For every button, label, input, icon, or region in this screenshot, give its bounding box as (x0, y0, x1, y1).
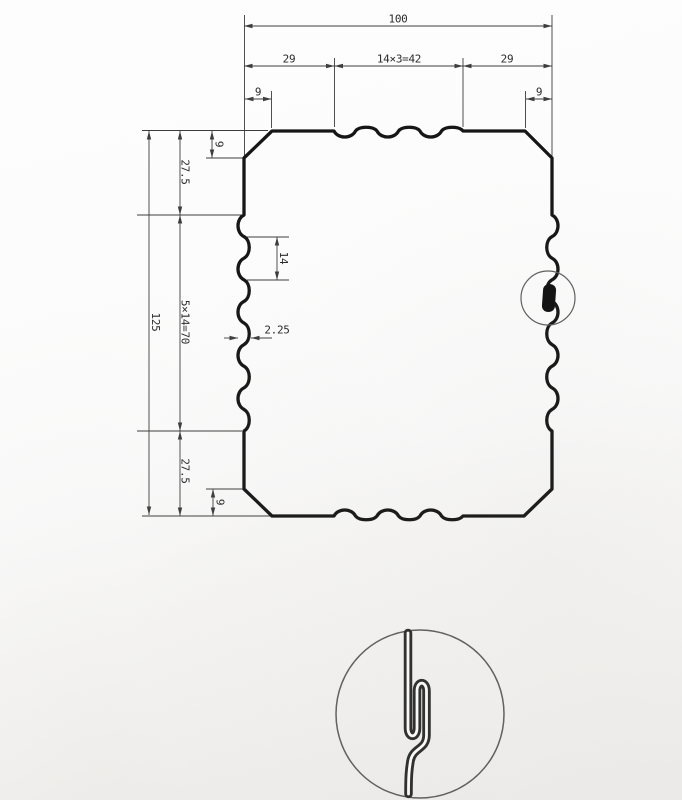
arrowhead (210, 150, 214, 159)
arrowhead (275, 272, 279, 281)
arrowhead (251, 336, 260, 340)
dim-top-left-segment: 29 (283, 53, 296, 66)
arrowhead (178, 423, 182, 432)
arrowhead (245, 97, 254, 101)
dimension-lines (137, 15, 552, 516)
arrowhead (178, 508, 182, 517)
dim-left-bottom-chamfer: 9 (214, 499, 227, 505)
arrowhead (147, 131, 151, 140)
arrowhead (544, 64, 553, 68)
dim-left-bottom-segment: 27.5 (179, 458, 192, 483)
drawing-canvas: 100 29 14×3=42 29 9 9 125 27.5 5×14=70 2… (0, 0, 682, 800)
arrowhead (211, 489, 215, 498)
arrowhead (178, 131, 182, 140)
dim-top-middle-segment: 14×3=42 (377, 53, 421, 66)
arrowhead (244, 24, 253, 28)
arrowhead (544, 97, 553, 101)
arrowhead (230, 336, 239, 340)
dim-top-right-chamfer: 9 (536, 86, 542, 99)
arrowhead (210, 131, 214, 140)
dim-left-top-chamfer: 9 (213, 141, 226, 147)
arrowhead (244, 64, 253, 68)
arrowhead (544, 24, 553, 28)
dim-left-top-segment: 27.5 (179, 159, 192, 184)
dim-rib-pitch: 14 (277, 252, 290, 265)
arrowhead (178, 215, 182, 224)
arrowhead (263, 97, 272, 101)
arrowhead (526, 97, 535, 101)
dim-top-left-chamfer: 9 (255, 86, 261, 99)
dim-left-middle-segment: 5×14=70 (179, 300, 192, 344)
arrowhead (335, 64, 344, 68)
dim-overall-height: 125 (149, 313, 162, 332)
arrowhead (147, 507, 151, 516)
arrowhead (463, 64, 472, 68)
drawing-sheet: 100 29 14×3=42 29 9 9 125 27.5 5×14=70 2… (0, 0, 682, 800)
arrowhead (178, 207, 182, 216)
arrowhead (455, 64, 464, 68)
arrowhead (326, 64, 335, 68)
arrowhead (178, 431, 182, 440)
dim-overall-width: 100 (389, 13, 408, 26)
seam-lock-section (542, 284, 557, 313)
dim-top-right-segment: 29 (501, 53, 514, 66)
arrowhead (275, 237, 279, 246)
dim-rib-depth: 2.25 (264, 324, 289, 337)
arrowhead (211, 508, 215, 517)
dimension-arrowheads (147, 24, 552, 516)
